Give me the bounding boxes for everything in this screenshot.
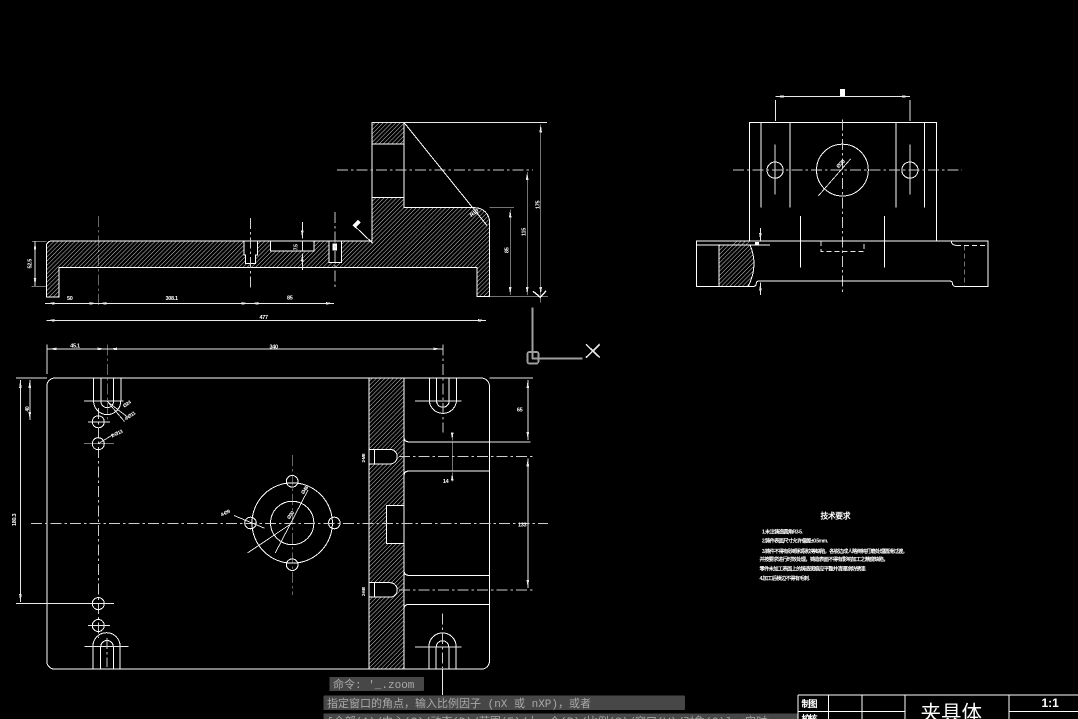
svg-text:命令: '_.zoom: 命令: '_.zoom — [333, 677, 415, 692]
svg-text:校核: 校核 — [802, 713, 818, 719]
svg-text:115: 115 — [521, 228, 527, 236]
svg-text:308.1: 308.1 — [166, 296, 179, 302]
svg-text:2-M8: 2-M8 — [361, 586, 366, 596]
svg-text:零件未加工表面上的铸造斑痕应平整并清理涂防锈漆.: 零件未加工表面上的铸造斑痕应平整并清理涂防锈漆. — [759, 565, 868, 573]
svg-text:340: 340 — [270, 344, 279, 350]
svg-text:7.5: 7.5 — [294, 244, 300, 250]
svg-text:1:1: 1:1 — [1042, 696, 1060, 710]
svg-text:50: 50 — [67, 296, 73, 302]
svg-text:175: 175 — [535, 200, 541, 209]
svg-text:3.铸件不得有砂眼和裂纹等缺陷，各锐边成人略倒钝打磨处理圆滑: 3.铸件不得有砂眼和裂纹等缺陷，各锐边成人略倒钝打磨处理圆滑过渡， — [762, 547, 907, 555]
svg-text:45.1: 45.1 — [70, 343, 80, 349]
svg-text:40: 40 — [25, 406, 31, 411]
svg-text:180.3: 180.3 — [12, 513, 18, 526]
svg-text:85: 85 — [505, 247, 511, 253]
svg-text:1.未注铸造圆角R3-5.: 1.未注铸造圆角R3-5. — [762, 527, 803, 535]
svg-text:制图: 制图 — [802, 698, 818, 709]
svg-text:2.铸件表面尺寸允许偏差±0.5mm.: 2.铸件表面尺寸允许偏差±0.5mm. — [762, 537, 829, 545]
svg-text:指定窗口的角点，输入比例因子 (nX 或 nXP)，或者: 指定窗口的角点，输入比例因子 (nX 或 nXP)，或者 — [327, 696, 591, 711]
svg-text:477: 477 — [260, 315, 269, 321]
svg-text:52.5: 52.5 — [28, 259, 34, 269]
svg-text:夹具体: 夹具体 — [921, 702, 983, 719]
svg-text:4.加工后棱边不得有毛刺.: 4.加工后棱边不得有毛刺. — [760, 574, 811, 582]
svg-text:技术要求: 技术要求 — [821, 510, 851, 520]
svg-text:133: 133 — [518, 523, 527, 529]
svg-text:85: 85 — [287, 295, 293, 301]
svg-text:65: 65 — [517, 408, 523, 414]
svg-text:2-M8: 2-M8 — [361, 453, 366, 463]
svg-text:并按要求进行时效处理，铸造表面不得有影响加工之精度缺陷，: 并按要求进行时效处理，铸造表面不得有影响加工之精度缺陷， — [760, 555, 888, 563]
